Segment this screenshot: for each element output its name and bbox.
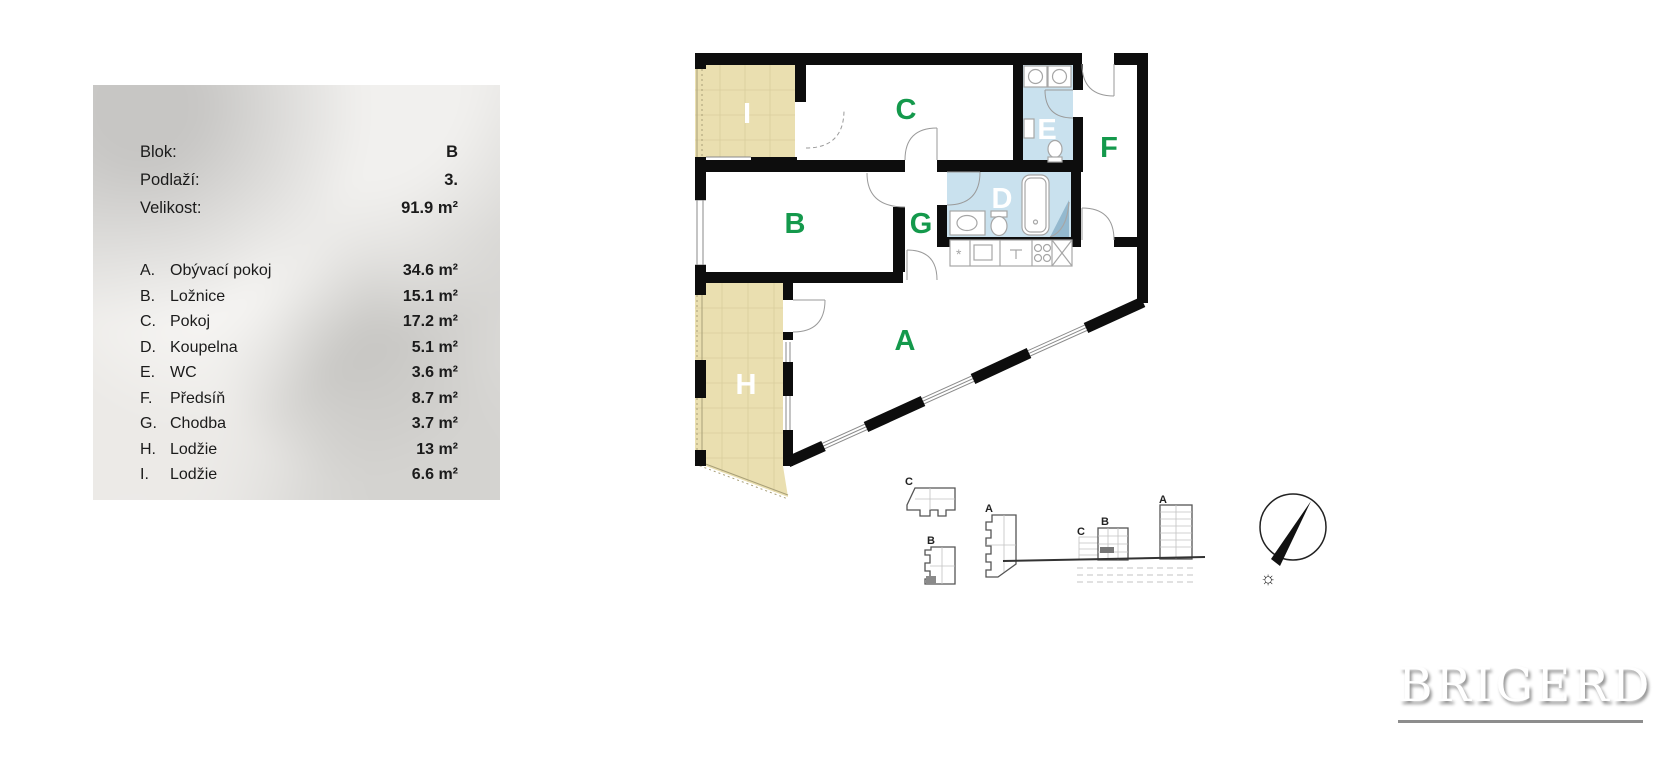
field-value: 3. bbox=[444, 171, 458, 190]
room-list-item: F.Předsíň8.7 m² bbox=[140, 390, 458, 416]
room-letter: G. bbox=[140, 415, 170, 433]
room-name: Chodba bbox=[170, 415, 412, 433]
room-list-item: B.Ložnice15.1 m² bbox=[140, 288, 458, 314]
sink-icon bbox=[1024, 119, 1034, 138]
room-area: 3.6 m² bbox=[412, 364, 458, 382]
bathtub-icon bbox=[1022, 175, 1049, 235]
vent-icon: * bbox=[956, 246, 962, 262]
highlighted-floor bbox=[1100, 547, 1114, 553]
room-label-g: G bbox=[910, 208, 933, 240]
unit-info-panel: Blok: B Podlaží: 3. Velikost: 91.9 m² A.… bbox=[93, 85, 500, 500]
vanity-icon bbox=[950, 211, 985, 235]
site-label-a: A bbox=[985, 503, 993, 515]
room-name: Koupelna bbox=[170, 339, 412, 357]
room-list-item: G.Chodba3.7 m² bbox=[140, 415, 458, 441]
field-velikost: Velikost: 91.9 m² bbox=[140, 199, 458, 227]
room-list-item: H.Lodžie13 m² bbox=[140, 441, 458, 467]
field-value: B bbox=[446, 143, 458, 162]
site-label-b: B bbox=[927, 535, 935, 547]
room-area: 34.6 m² bbox=[403, 262, 458, 280]
sun-icon: ☼ bbox=[1260, 568, 1277, 588]
room-list: A.Obývací pokoj34.6 m² B.Ložnice15.1 m² … bbox=[140, 262, 458, 492]
elevation-label-b: B bbox=[1101, 516, 1109, 528]
floor-plan: * A B C D E bbox=[650, 40, 1330, 600]
room-label-d: D bbox=[992, 183, 1013, 215]
room-label-f: F bbox=[1100, 132, 1118, 164]
kitchen-counter: * bbox=[950, 240, 1072, 266]
field-label: Blok: bbox=[140, 143, 177, 162]
room-letter: E. bbox=[140, 364, 170, 382]
compass: ☼ bbox=[1260, 494, 1326, 588]
field-podlazi: Podlaží: 3. bbox=[140, 171, 458, 199]
room-label-i: I bbox=[743, 98, 751, 130]
room-label-b: B bbox=[785, 208, 806, 240]
room-label-c: C bbox=[896, 94, 917, 126]
room-letter: C. bbox=[140, 313, 170, 331]
brand-logo: BRIGERD bbox=[1398, 660, 1643, 723]
brand-logo-text: BRIGERD bbox=[1398, 660, 1643, 712]
room-letter: F. bbox=[140, 390, 170, 408]
elevation-label-c: C bbox=[1077, 526, 1085, 538]
room-list-item: C.Pokoj17.2 m² bbox=[140, 313, 458, 339]
site-key-plans: C B A bbox=[905, 476, 1016, 584]
room-letter: B. bbox=[140, 288, 170, 306]
room-label-a: A bbox=[895, 325, 916, 357]
toilet-icon bbox=[991, 217, 1007, 236]
room-area: 5.1 m² bbox=[412, 339, 458, 357]
page: Blok: B Podlaží: 3. Velikost: 91.9 m² A.… bbox=[0, 0, 1667, 758]
room-list-item: A.Obývací pokoj34.6 m² bbox=[140, 262, 458, 288]
room-letter: I. bbox=[140, 466, 170, 484]
room-area: 13 m² bbox=[416, 441, 458, 459]
room-name: Ložnice bbox=[170, 288, 403, 306]
room-name: Obývací pokoj bbox=[170, 262, 403, 280]
field-label: Podlaží: bbox=[140, 171, 200, 190]
room-name: Pokoj bbox=[170, 313, 403, 331]
field-value: 91.9 m² bbox=[401, 199, 458, 218]
panel-content: Blok: B Podlaží: 3. Velikost: 91.9 m² A.… bbox=[93, 85, 500, 492]
field-label: Velikost: bbox=[140, 199, 201, 218]
room-letter: D. bbox=[140, 339, 170, 357]
room-name: WC bbox=[170, 364, 412, 382]
room-list-item: D.Koupelna5.1 m² bbox=[140, 339, 458, 365]
room-name: Lodžie bbox=[170, 441, 416, 459]
highlighted-unit bbox=[926, 576, 936, 584]
room-label-h: H bbox=[736, 369, 757, 401]
room-area: 8.7 m² bbox=[412, 390, 458, 408]
room-letter: A. bbox=[140, 262, 170, 280]
brand-logo-underline bbox=[1398, 720, 1643, 723]
room-name: Lodžie bbox=[170, 466, 412, 484]
room-area: 6.6 m² bbox=[412, 466, 458, 484]
room-letter: H. bbox=[140, 441, 170, 459]
site-label-c: C bbox=[905, 476, 913, 488]
room-area: 15.1 m² bbox=[403, 288, 458, 306]
room-area: 3.7 m² bbox=[412, 415, 458, 433]
field-blok: Blok: B bbox=[140, 143, 458, 171]
elevation-key: C B A bbox=[1003, 494, 1205, 582]
room-name: Předsíň bbox=[170, 390, 412, 408]
elevation-label-a: A bbox=[1159, 494, 1167, 506]
compass-circle bbox=[1260, 494, 1326, 560]
room-list-item: E.WC3.6 m² bbox=[140, 364, 458, 390]
room-area: 17.2 m² bbox=[403, 313, 458, 331]
room-label-e: E bbox=[1037, 114, 1056, 146]
room-list-item: I.Lodžie6.6 m² bbox=[140, 466, 458, 492]
